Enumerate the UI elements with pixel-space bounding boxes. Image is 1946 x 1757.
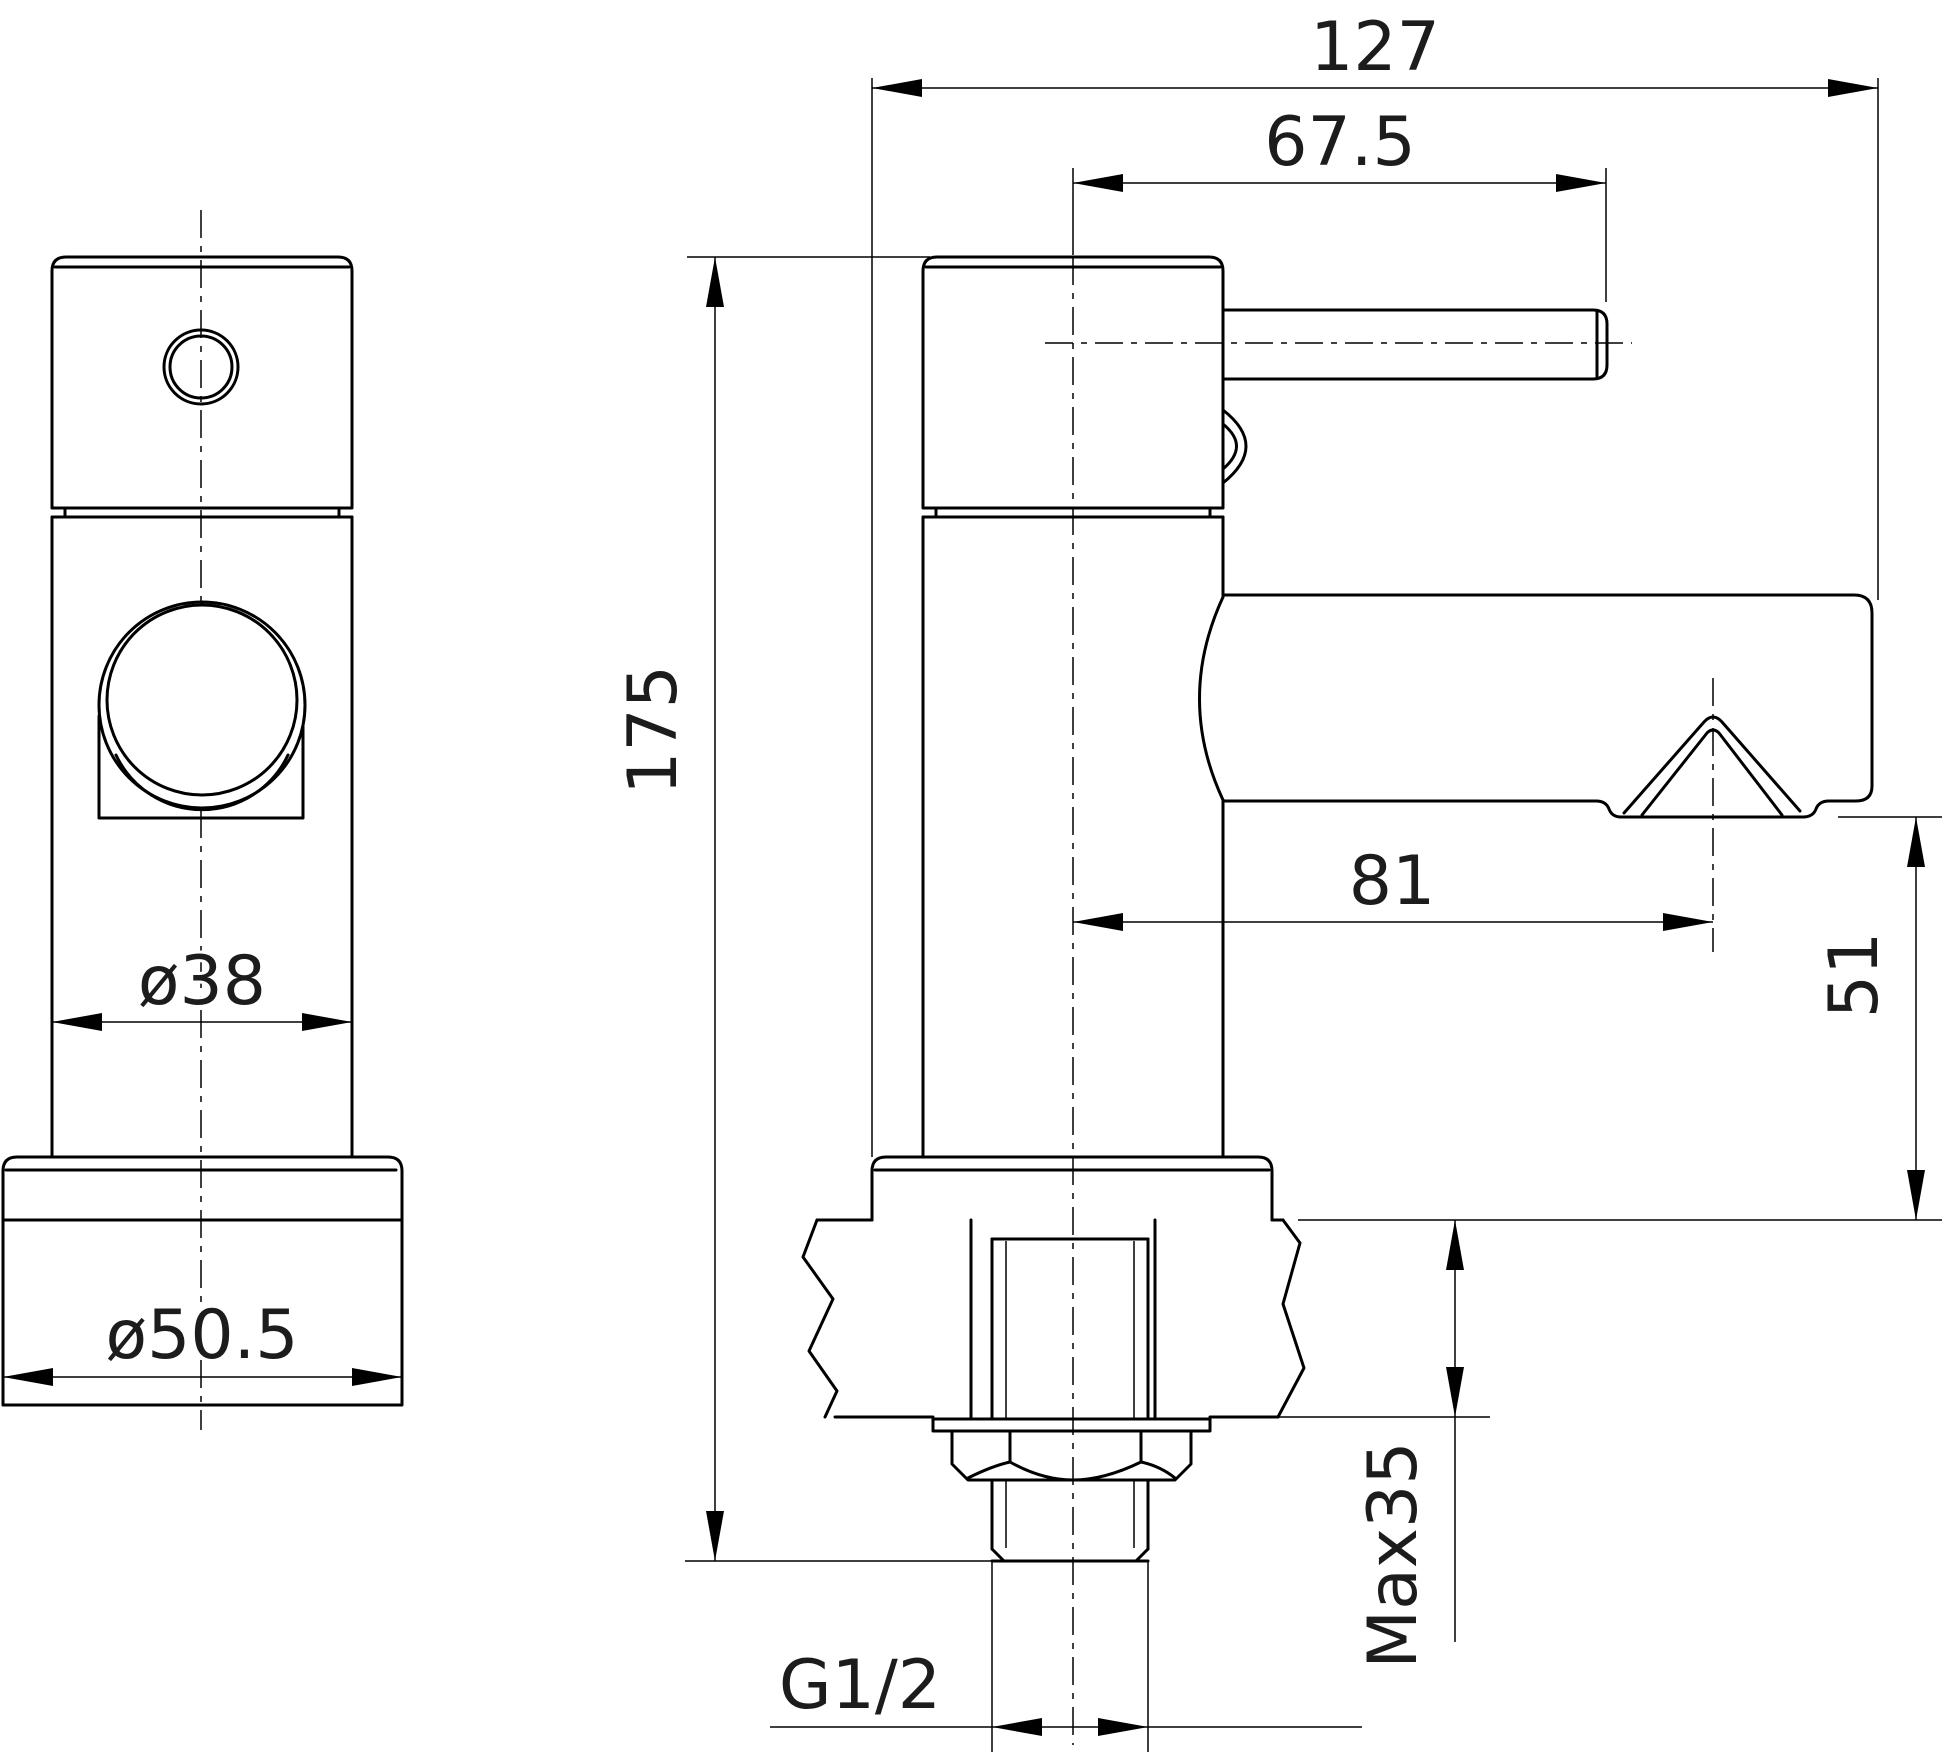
dim-label-g12: G1/2 xyxy=(779,1646,941,1725)
sheet-background xyxy=(0,0,1946,1757)
dim-label-dia50-5: ø50.5 xyxy=(105,1296,298,1375)
dim-label-51: 51 xyxy=(1815,932,1894,1019)
technical-drawing-canvas: 127 67.5 175 ø38 ø50 xyxy=(0,0,1946,1757)
dim-label-dia38: ø38 xyxy=(138,942,266,1021)
drawing-sheet: 127 67.5 175 ø38 ø50 xyxy=(0,0,1946,1757)
dim-label-175: 175 xyxy=(614,665,693,795)
dim-label-max35: Max35 xyxy=(1354,1441,1433,1668)
dim-label-67-5: 67.5 xyxy=(1264,103,1415,182)
dim-label-81: 81 xyxy=(1349,842,1436,921)
dim-label-127: 127 xyxy=(1310,8,1440,87)
